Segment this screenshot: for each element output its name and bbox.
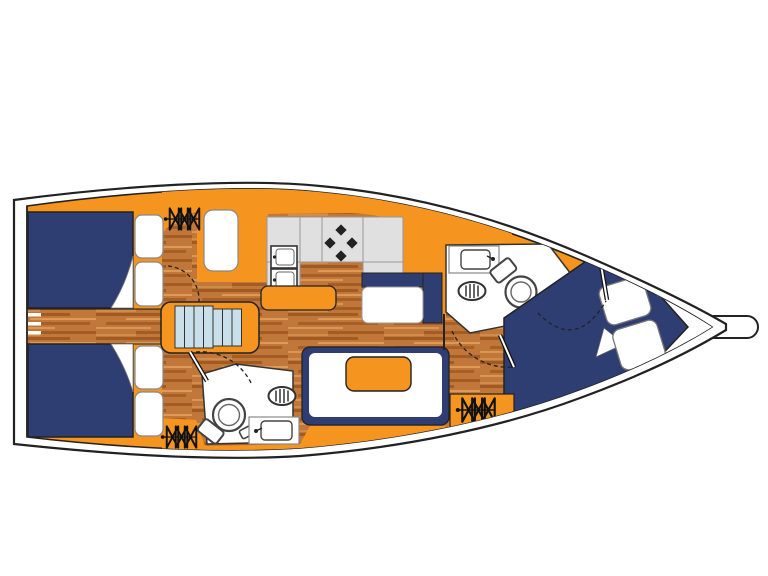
kitchen-island — [261, 286, 336, 310]
pillow — [135, 215, 163, 258]
aft-starboard-berth — [28, 344, 133, 437]
companionway-stairs — [161, 302, 259, 353]
port-seat — [204, 210, 238, 271]
starboard-settee — [362, 273, 442, 323]
deck-plan-canvas — [0, 0, 768, 576]
pillow — [135, 262, 163, 306]
washbasin-icon — [249, 417, 299, 444]
settee-seat — [362, 287, 423, 323]
stern-walkway-floor — [27, 309, 163, 344]
aft-port-berth — [28, 212, 133, 308]
pillow — [135, 392, 163, 436]
swim-ladder — [28, 313, 41, 335]
settee-back-cushion — [423, 273, 442, 323]
saloon-dinette — [302, 347, 449, 425]
aft-head — [197, 364, 299, 445]
yacht-deck-plan — [0, 0, 768, 576]
double-sink-icon — [271, 246, 297, 291]
pillow — [135, 346, 163, 389]
saloon-table — [346, 357, 411, 391]
